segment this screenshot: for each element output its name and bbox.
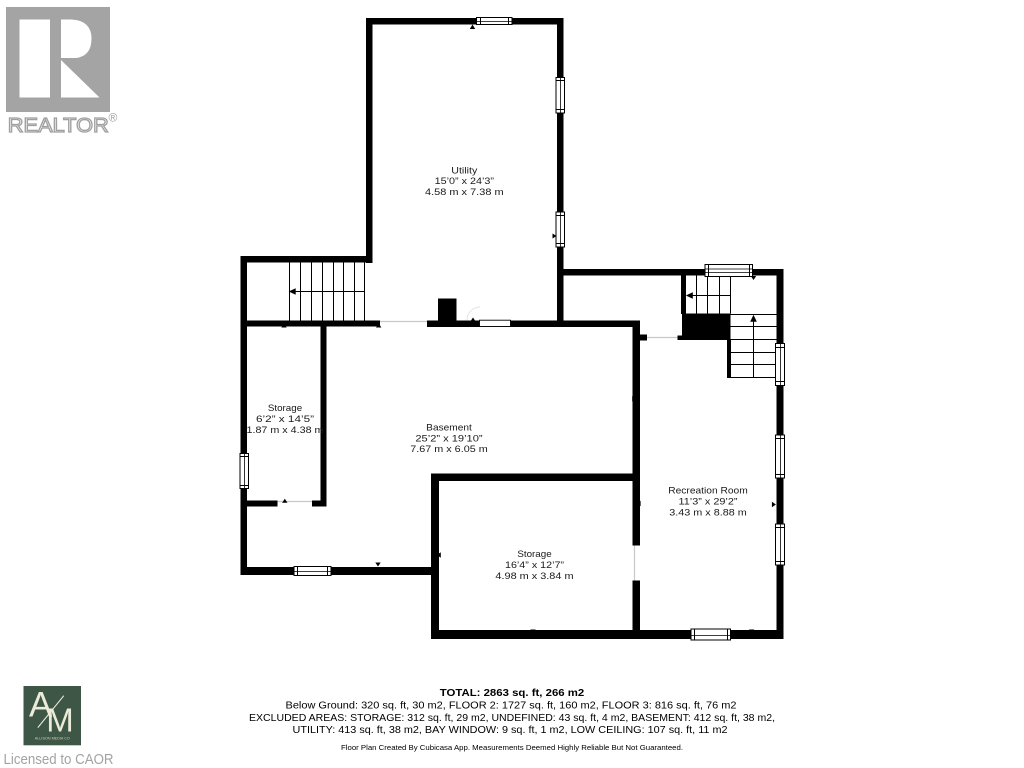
- svg-text:Recreation Room: Recreation Room: [668, 486, 748, 497]
- svg-text:TOTAL: 2863 sq. ft, 266 m2: TOTAL: 2863 sq. ft, 266 m2: [440, 687, 585, 699]
- svg-text:UTILITY: 413 sq. ft, 38 m2, BA: UTILITY: 413 sq. ft, 38 m2, BAY WINDOW: …: [293, 724, 728, 736]
- svg-text:Floor Plan Created By Cubicasa: Floor Plan Created By Cubicasa App. Meas…: [341, 743, 683, 752]
- svg-text:Basement: Basement: [426, 423, 472, 434]
- svg-text:16’4” x 12’7”: 16’4” x 12’7”: [505, 560, 564, 571]
- svg-text:®: ®: [109, 111, 118, 125]
- svg-text:11’3” x 29’2”: 11’3” x 29’2”: [679, 496, 738, 507]
- svg-text:25’2” x 19’10”: 25’2” x 19’10”: [415, 433, 482, 444]
- svg-text:3.43 m x 8.88 m: 3.43 m x 8.88 m: [669, 507, 747, 518]
- svg-text:EXCLUDED AREAS: STORAGE: 312 s: EXCLUDED AREAS: STORAGE: 312 sq. ft, 29 …: [249, 712, 775, 724]
- svg-text:M: M: [46, 702, 74, 739]
- svg-text:Storage: Storage: [268, 403, 302, 414]
- svg-text:ALLISON MEDIA CO: ALLISON MEDIA CO: [35, 735, 70, 740]
- svg-text:4.98 m x 3.84 m: 4.98 m x 3.84 m: [495, 571, 573, 582]
- svg-text:REALTOR: REALTOR: [8, 114, 109, 137]
- svg-text:Licensed to CAOR: Licensed to CAOR: [4, 752, 114, 768]
- svg-text:Utility: Utility: [451, 165, 477, 176]
- svg-text:15’0” x 24’3”: 15’0” x 24’3”: [435, 176, 494, 187]
- svg-text:Storage: Storage: [517, 549, 551, 560]
- svg-text:Below Ground: 320 sq. ft, 30 m: Below Ground: 320 sq. ft, 30 m2, FLOOR 2…: [286, 700, 737, 712]
- svg-text:6’2” x 14’5”: 6’2” x 14’5”: [256, 414, 314, 425]
- svg-text:1.87 m x 4.38 m: 1.87 m x 4.38 m: [247, 425, 324, 436]
- svg-text:4.58 m x 7.38 m: 4.58 m x 7.38 m: [425, 187, 504, 198]
- svg-text:7.67 m x 6.05 m: 7.67 m x 6.05 m: [410, 444, 487, 455]
